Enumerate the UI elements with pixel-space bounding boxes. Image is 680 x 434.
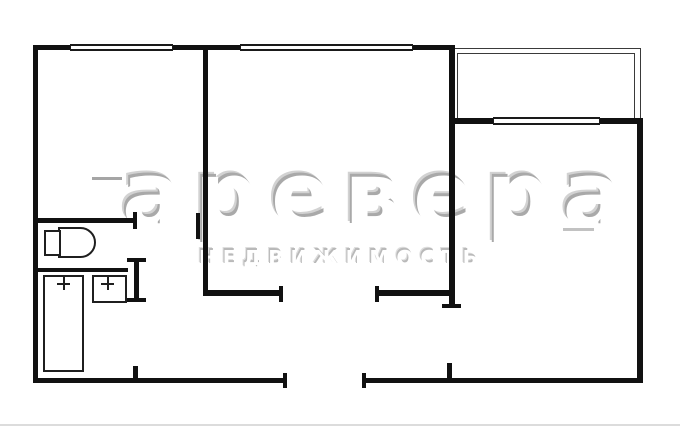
balcony-outline-inner [457, 53, 635, 122]
floor-plan-canvas: аревера НЕДВИЖИМОСТЬ [0, 0, 680, 434]
door-jamb-left-room-left [133, 212, 137, 229]
wall-hallway-top [33, 218, 135, 223]
watermark-leading-dash [92, 177, 122, 180]
watermark-trailing-dash [563, 228, 594, 231]
wall-divider-middle-right [449, 45, 455, 305]
entrance-door-jamb-left [283, 373, 287, 388]
wall-exterior-left [33, 45, 38, 383]
wall-junction-tick-bathroom [133, 366, 138, 378]
wall-wc-bathroom-divider [33, 268, 128, 272]
bathtub-faucet-icon [57, 277, 70, 290]
scan-edge-line [0, 424, 680, 426]
wall-middle-room-bottom-right [377, 290, 455, 296]
window-symbol-middle-room [240, 44, 413, 51]
door-jamb-middle-room-left [279, 286, 283, 302]
wall-middle-room-bottom-left [203, 290, 281, 296]
toilet-tank-icon [44, 230, 61, 256]
door-jamb-bathroom-top [127, 258, 146, 262]
entrance-door-jamb-right [362, 373, 366, 388]
toilet-bowl-icon [58, 227, 96, 258]
wall-exterior-right [637, 118, 643, 383]
watermark-subtitle-text: НЕДВИЖИМОСТЬ [199, 246, 485, 270]
wall-exterior-bottom-right-segment [363, 378, 643, 383]
window-symbol-right-room [493, 117, 600, 125]
door-jamb-bathroom-bottom [127, 298, 146, 302]
door-jamb-left-room-right [196, 213, 200, 239]
door-jamb-middle-room-right [375, 286, 379, 302]
wall-junction-tick-hallway [447, 363, 452, 378]
window-symbol-left-room [70, 44, 173, 51]
door-jamb-right-room [442, 304, 461, 308]
wall-divider-left-middle [203, 45, 208, 296]
sink-faucet-icon [101, 277, 114, 290]
wall-exterior-bottom-left-segment [33, 378, 287, 383]
wall-bathroom-right [134, 260, 139, 302]
